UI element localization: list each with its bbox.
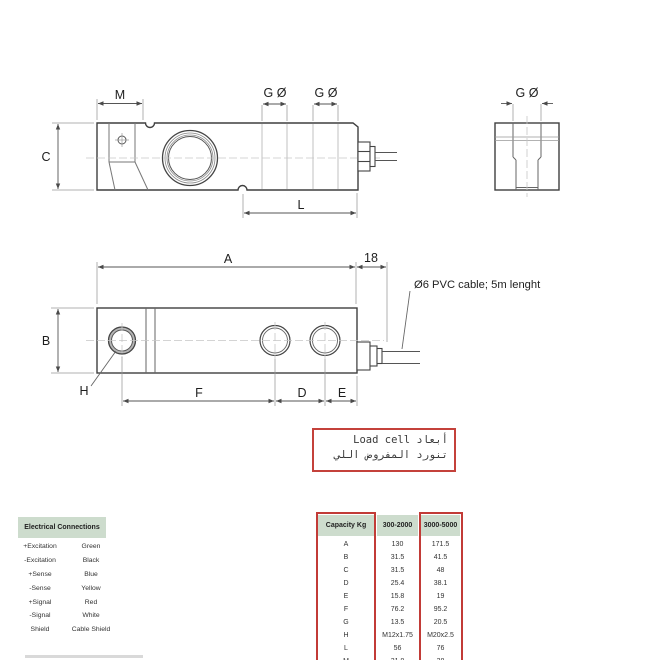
dim-label-b: B: [42, 334, 50, 348]
dim-label-c: C: [41, 150, 50, 164]
table-row: -Signal White: [15, 609, 125, 623]
table-row: +Sense Blue: [15, 568, 125, 582]
note-line-2: تنورد المفروض اللي: [318, 448, 448, 463]
dim-value-small: M12x1.75: [377, 632, 418, 639]
cropped-bottom-band: [25, 655, 143, 658]
cable-stub-plan: [382, 352, 420, 364]
dim-label-f: F: [195, 386, 203, 400]
electrical-connections-header: Electrical Connections: [18, 517, 106, 538]
wire-color: Black: [65, 557, 117, 564]
dim-value-small: 130: [377, 541, 418, 548]
dim-label-g1: G Ø: [264, 86, 287, 100]
dim-label-a: A: [224, 252, 233, 266]
dim-ext-a: [97, 262, 356, 304]
dim-value-small: 13.5: [377, 619, 418, 626]
datasheet-page: M G Ø G Ø C: [0, 0, 660, 660]
leader-cable-note: [402, 291, 410, 349]
dim-label-l: L: [298, 198, 305, 212]
signal-name: Shield: [15, 626, 65, 633]
table-row: +Excitation Green: [15, 540, 125, 554]
end-view: G Ø: [495, 86, 559, 197]
dim-ext-g2: [313, 105, 338, 121]
side-view: M G Ø G Ø C: [41, 86, 397, 218]
dim-label-h: H: [79, 384, 88, 398]
load-cell-drawing: M G Ø G Ø C: [0, 0, 660, 450]
cable-gland-side: [358, 142, 375, 171]
signal-name: -Sense: [15, 585, 65, 592]
dim-ext-m: [97, 99, 143, 120]
note-line-1: أبعاد Load cell: [318, 433, 448, 448]
side-view-body: [97, 123, 358, 190]
signal-name: +Sense: [15, 571, 65, 578]
wire-color: Red: [65, 599, 117, 606]
highlight-box-dimension-column: [316, 512, 376, 660]
load-cell-note-box: أبعاد Load cell تنورد المفروض اللي: [312, 428, 456, 472]
dim-value-small: 76.2: [377, 606, 418, 613]
signal-name: -Signal: [15, 612, 65, 619]
wire-color: Yellow: [65, 585, 117, 592]
highlight-box-3000-5000-column: [419, 512, 463, 660]
wire-color: White: [65, 612, 117, 619]
dim-label-m: M: [115, 88, 125, 102]
signal-name: +Signal: [15, 599, 65, 606]
dim-label-18: 18: [364, 251, 378, 265]
dim-value-small: 31.5: [377, 554, 418, 561]
dim-label-d: D: [297, 386, 306, 400]
cable-gland-plan: [357, 342, 382, 370]
table-row: -Sense Yellow: [15, 581, 125, 595]
signal-name: +Excitation: [15, 543, 65, 550]
dim-value-small: 31.5: [377, 567, 418, 574]
table-row: Shield Cable Shield: [15, 623, 125, 637]
cable-stub-side: [375, 153, 397, 161]
plan-view: A 18 B H F: [42, 251, 541, 406]
dim-value-small: 15.8: [377, 593, 418, 600]
signal-name: -Excitation: [15, 557, 65, 564]
cable-note-text: Ø6 PVC cable; 5m lenght: [414, 279, 541, 291]
dim-value-small: 56: [377, 645, 418, 652]
wire-color: Green: [65, 543, 117, 550]
table-row: -Excitation Black: [15, 554, 125, 568]
capacity-col-header: 300-2000: [377, 515, 418, 536]
dim-label-g2: G Ø: [315, 86, 338, 100]
wire-color: Blue: [65, 571, 117, 578]
dim-label-e: E: [338, 386, 346, 400]
dim-value-small: 25.4: [377, 580, 418, 587]
dim-label-g-end: G Ø: [516, 86, 539, 100]
dim-ext-g1: [262, 105, 287, 121]
wire-color: Cable Shield: [65, 626, 117, 633]
electrical-connections-table: +Excitation Green -Excitation Black +Sen…: [15, 540, 125, 637]
table-row: +Signal Red: [15, 595, 125, 609]
